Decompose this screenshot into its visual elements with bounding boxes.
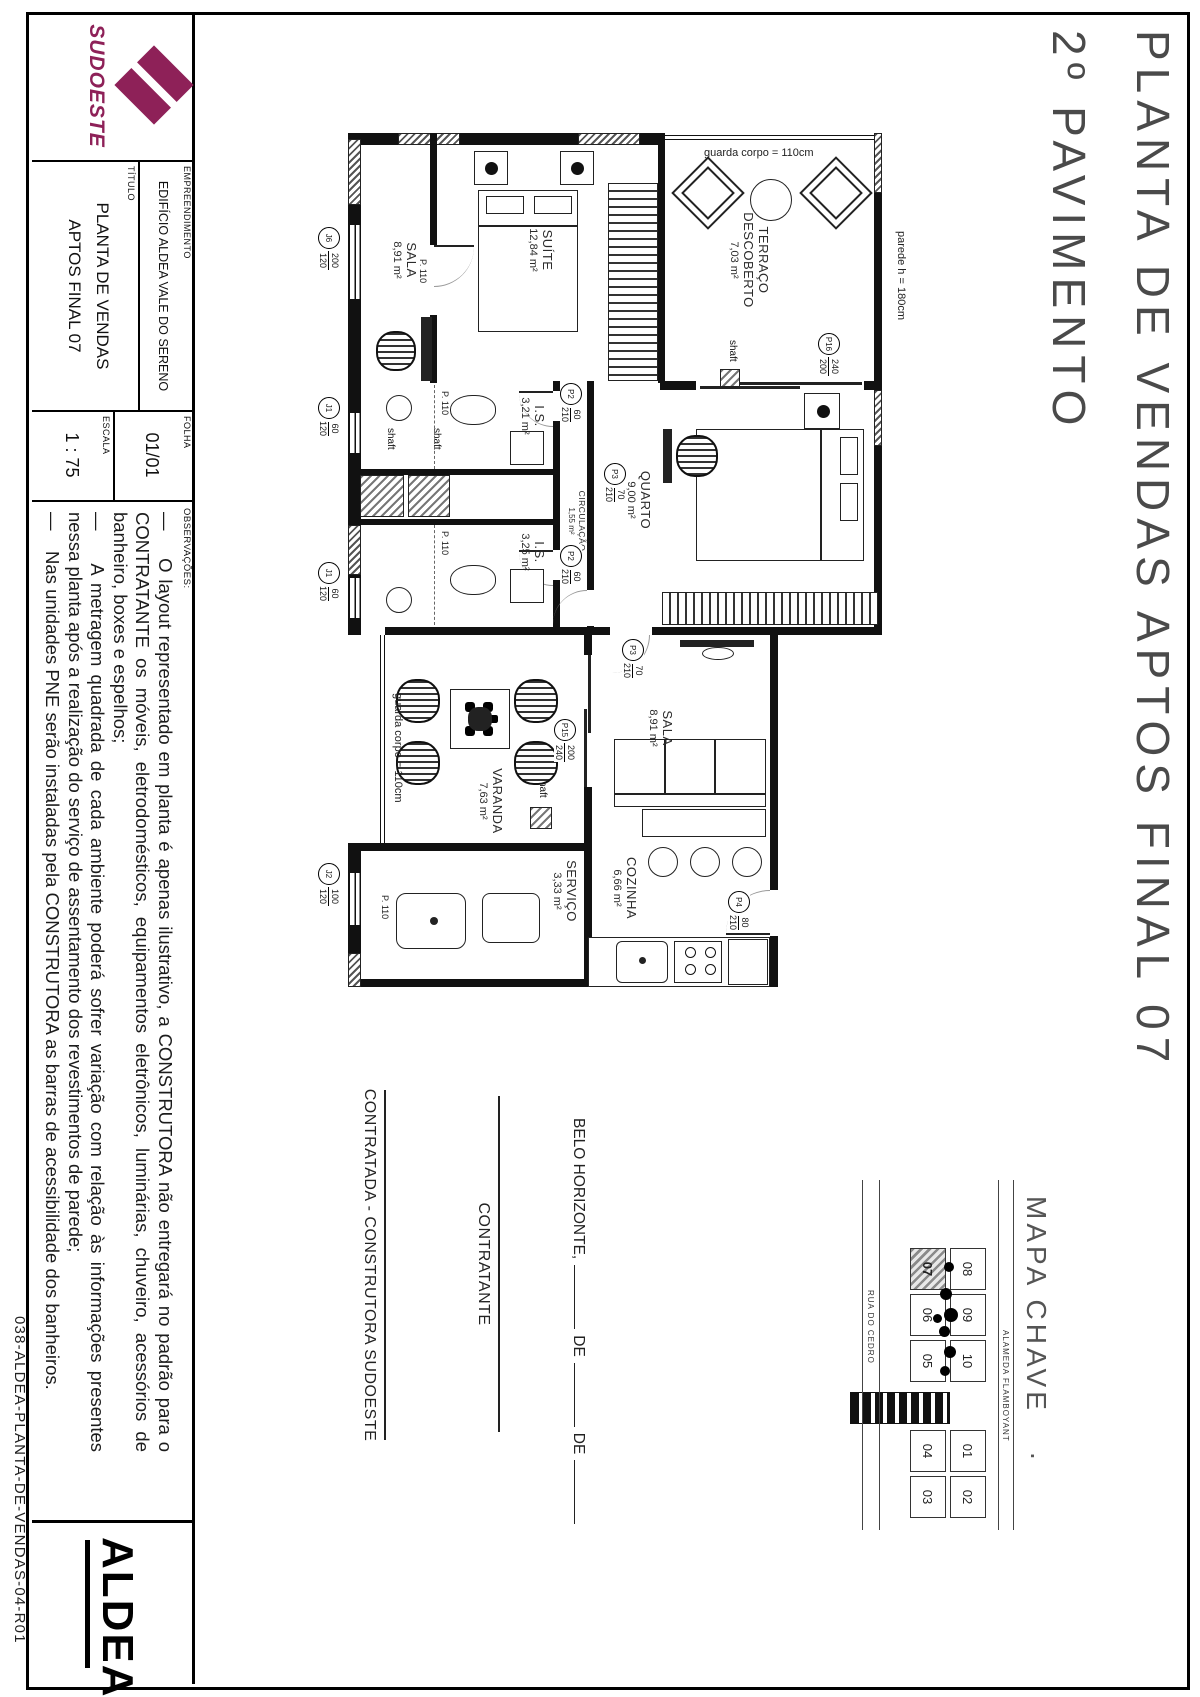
observacoes-label: OBSERVAÇÕES: xyxy=(181,508,192,589)
shower-line xyxy=(434,525,435,625)
suite-door-label: P. 110 xyxy=(418,259,428,283)
bed-pillow xyxy=(840,437,858,475)
door-suite-leaf xyxy=(434,245,474,247)
titleblock-divider xyxy=(32,1520,195,1523)
bar-counter xyxy=(642,809,766,837)
observacao-item: — Nas unidades PNE serão instaladas pela… xyxy=(41,512,64,1452)
file-code: 038-ALDEA-PLANTA-DE-VENDAS-04-R01 xyxy=(11,1316,28,1644)
door-tag-p15: P15 200240 xyxy=(554,719,576,762)
plant xyxy=(468,707,492,731)
wall-hatch xyxy=(398,133,460,145)
slider-p16-leaf xyxy=(700,386,800,389)
titulo-value-line2: APTOS FINAL 07 xyxy=(64,163,84,409)
sudoeste-logo-text: SUDOESTE xyxy=(84,14,108,158)
date-blank xyxy=(574,1363,588,1427)
desk xyxy=(421,317,432,381)
sink-tap xyxy=(639,957,646,964)
wall-hatch xyxy=(578,133,640,145)
door-p2a-gap xyxy=(553,391,560,421)
street-alameda-label: ALAMEDA FLAMBOYANT xyxy=(1001,1330,1010,1442)
room-label-is2: I.S. 3,25 m² xyxy=(518,527,546,577)
shower-line xyxy=(434,385,435,469)
stool xyxy=(690,847,720,877)
servico-door-label: P. 110 xyxy=(380,895,390,919)
observacao-item: — O layout representado em planta é apen… xyxy=(108,512,176,1452)
quarto-bed xyxy=(696,429,864,561)
window-j6 xyxy=(348,225,361,299)
door-tag-p16: P16 240200 xyxy=(818,333,840,376)
stove xyxy=(674,941,722,983)
quarto-wardrobe xyxy=(662,592,878,625)
date-blank xyxy=(574,1460,588,1524)
room-label-servico: SERVIÇO 3,33 m² xyxy=(550,851,578,931)
nightstand xyxy=(804,393,840,429)
sofa-back-line xyxy=(614,793,766,795)
titulo-value-line1: PLANTA DE VENDAS xyxy=(92,163,112,409)
bed-blanket-line xyxy=(820,429,822,561)
stove-burner xyxy=(705,964,716,975)
keymap-unit-01: 01 xyxy=(950,1430,986,1472)
fridge xyxy=(728,939,768,985)
empreendimento-value: EDIFÍCIO ALDEA VALE DO SERENO xyxy=(156,163,170,409)
aldea-logo-bar xyxy=(85,1540,90,1668)
door-tag-p2a: P2 60210 xyxy=(560,383,582,422)
door-p4-gap xyxy=(770,890,778,936)
aldea-logo: ALDEA xyxy=(92,1537,142,1697)
observacao-item: — A metragem quadrada de cada ambiente p… xyxy=(63,512,108,1452)
tree xyxy=(944,1346,956,1358)
date-blank xyxy=(574,1265,588,1329)
door-p3b-gap xyxy=(610,627,652,635)
terrace-guard-rail xyxy=(662,135,882,140)
desk-chair xyxy=(376,331,416,371)
nightstand xyxy=(560,151,594,185)
shaft-box xyxy=(360,475,404,517)
varanda-chair xyxy=(514,679,558,723)
wall-varanda-left xyxy=(385,627,585,635)
slider-p15-leaf xyxy=(588,655,591,733)
wall-is-divider-b xyxy=(357,519,553,525)
stool xyxy=(732,847,762,877)
door-tag-p2b: P2 60210 xyxy=(560,545,582,584)
room-label-sala1: SALA 8,91 m² xyxy=(390,215,418,305)
stove-burner xyxy=(685,964,696,975)
wall-hatch xyxy=(874,390,882,446)
door-tag-p3a: P3 70210 xyxy=(604,463,626,502)
wall-hatch xyxy=(348,525,361,575)
observacoes-text: — O layout representado em planta é apen… xyxy=(41,512,176,1452)
de-label: DE xyxy=(570,1335,587,1357)
door-tag-p3b: P3 70210 xyxy=(622,639,644,678)
wall-suite-top xyxy=(658,133,665,383)
stove-burner xyxy=(685,947,696,958)
shower-partition-label: P. 110 xyxy=(440,531,450,555)
floor-plan: shaft shaft shaft shaft P. 110 xyxy=(345,95,890,995)
room-label-quarto: QUARTO 9,00 m² xyxy=(624,455,652,545)
keymap-unit-10: 10 xyxy=(950,1340,986,1382)
sofa xyxy=(614,739,766,807)
door-p3a-gap xyxy=(587,590,594,626)
key-map-title: MAPA CHAVE xyxy=(1020,1196,1052,1414)
bed-pillow xyxy=(840,483,858,521)
room-label-terraco: TERRAÇO DESCOBERTO 7,03 m² xyxy=(727,205,770,315)
keymap-unit-07-highlighted: 07 xyxy=(910,1248,946,1290)
nightstand xyxy=(474,151,508,185)
escala-label: ESCALA xyxy=(101,416,111,455)
contratada-label: CONTRATADA - CONSTRUTORA SUDOESTE xyxy=(360,1070,378,1460)
tree xyxy=(944,1308,958,1322)
tree xyxy=(940,1366,950,1376)
window-tag-j2: J2 100120 xyxy=(318,863,340,906)
window-j1a xyxy=(348,413,361,453)
room-label-varanda: VARANDA 7,63 m² xyxy=(476,759,504,843)
suite-wardrobe xyxy=(608,183,658,381)
city-label: BELO HORIZONTE, xyxy=(570,1118,587,1259)
tree xyxy=(933,1314,942,1323)
shower-partition-label: P. 110 xyxy=(440,391,450,415)
window-tag-j6: J6 200120 xyxy=(318,227,340,270)
contratante-label: CONTRATANTE xyxy=(474,1096,492,1432)
toilet xyxy=(450,395,496,425)
room-label-is1: I.S. 3,21 m² xyxy=(518,391,546,441)
door-p2b-gap xyxy=(553,550,560,580)
door-p4-leaf xyxy=(726,933,770,935)
titleblock-top-line xyxy=(193,12,196,1684)
tv xyxy=(702,647,734,660)
guard-rail-label-terrace: guarda corpo = 110cm xyxy=(704,147,854,159)
titleblock-hdivider xyxy=(114,410,116,502)
guard-rail-label-varanda: guarda corpo = 110cm xyxy=(392,693,404,803)
keymap-unit-05: 05 xyxy=(910,1340,946,1382)
city-date-line: BELO HORIZONTE,DEDE xyxy=(569,1118,588,1530)
folha-label: FOLHA xyxy=(182,416,192,449)
door-tag-p4: P4 80210 xyxy=(728,891,750,930)
lamp xyxy=(571,162,584,175)
shower-head xyxy=(386,587,412,613)
lamp xyxy=(817,405,830,418)
room-label-suite: SUÍTE 12,84 m² xyxy=(526,205,554,295)
shower-head xyxy=(386,395,412,421)
shaft-box xyxy=(720,369,740,387)
tv-panel xyxy=(680,640,754,647)
shaft-box xyxy=(408,475,450,517)
stove-burner xyxy=(705,947,716,958)
lounge-chair xyxy=(799,156,873,230)
window-tag-j1a: J1 60120 xyxy=(318,397,340,436)
page: PLANTA DE VENDAS APTOS FINAL 07 2º PAVIM… xyxy=(0,0,1200,1697)
wall-hatch xyxy=(874,133,882,193)
stool xyxy=(648,847,678,877)
varanda-chair xyxy=(514,741,558,785)
wall-height-label: parede h = 180cm xyxy=(895,231,907,320)
room-label-sala2: SALA 8,91 m² xyxy=(646,683,674,773)
sheet-title-line1: PLANTA DE VENDAS APTOS FINAL 07 xyxy=(1126,30,1180,1069)
sofa-cushion-line xyxy=(715,739,717,793)
bed-pillow xyxy=(486,196,524,214)
door-suite-arc xyxy=(434,247,474,287)
slider-p15-leaf xyxy=(584,709,587,787)
titulo-label: TÍTULO xyxy=(126,166,136,201)
tree xyxy=(944,1262,954,1272)
tree xyxy=(940,1288,952,1300)
drawing-sheet: PLANTA DE VENDAS APTOS FINAL 07 2º PAVIM… xyxy=(0,0,1200,1697)
shaft-label: shaft xyxy=(385,427,396,451)
empreendimento-label: EMPREENDIMENTO xyxy=(182,166,192,259)
contratada-signature-line xyxy=(385,1090,387,1440)
escala-value: 1 : 75 xyxy=(61,412,82,498)
keymap-unit-02: 02 xyxy=(950,1476,986,1518)
lamp xyxy=(485,162,498,175)
window-j2 xyxy=(348,873,361,925)
keymap-unit-04: 04 xyxy=(910,1430,946,1472)
shaft-label: shaft xyxy=(431,427,442,451)
washer xyxy=(482,893,540,943)
varanda-guard-rail xyxy=(380,635,385,843)
toilet xyxy=(450,565,496,595)
quarto-desk xyxy=(663,429,672,483)
street-rua-cedro-label: RUA DO CEDRO xyxy=(866,1290,875,1364)
shaft-box xyxy=(530,807,552,829)
slider-p16-leaf xyxy=(732,382,862,385)
sheet-title-line2: 2º PAVIMENTO xyxy=(1042,30,1096,432)
de-label: DE xyxy=(570,1433,587,1455)
wall-step xyxy=(770,627,882,635)
key-map-period: . xyxy=(1024,1452,1056,1464)
wall-hatch xyxy=(348,139,361,205)
contratante-signature-line xyxy=(499,1096,501,1432)
room-label-cozinha: COZINHA 6,66 m² xyxy=(610,845,638,931)
wall-varanda-servico xyxy=(361,843,584,851)
window-tag-j1b: J1 60120 xyxy=(318,562,340,601)
shaft-label: shaft xyxy=(727,339,738,363)
keymap-unit-03: 03 xyxy=(910,1476,946,1518)
titleblock-divider xyxy=(32,160,195,162)
tank-drain xyxy=(430,917,438,925)
quarto-chair xyxy=(676,435,718,477)
wall-hatch xyxy=(348,953,361,987)
window-j1b xyxy=(348,578,361,618)
titleblock-hdivider xyxy=(139,160,141,412)
tree xyxy=(939,1326,950,1337)
keymap-unit-08: 08 xyxy=(950,1248,986,1290)
folha-value: 01/01 xyxy=(141,412,162,498)
